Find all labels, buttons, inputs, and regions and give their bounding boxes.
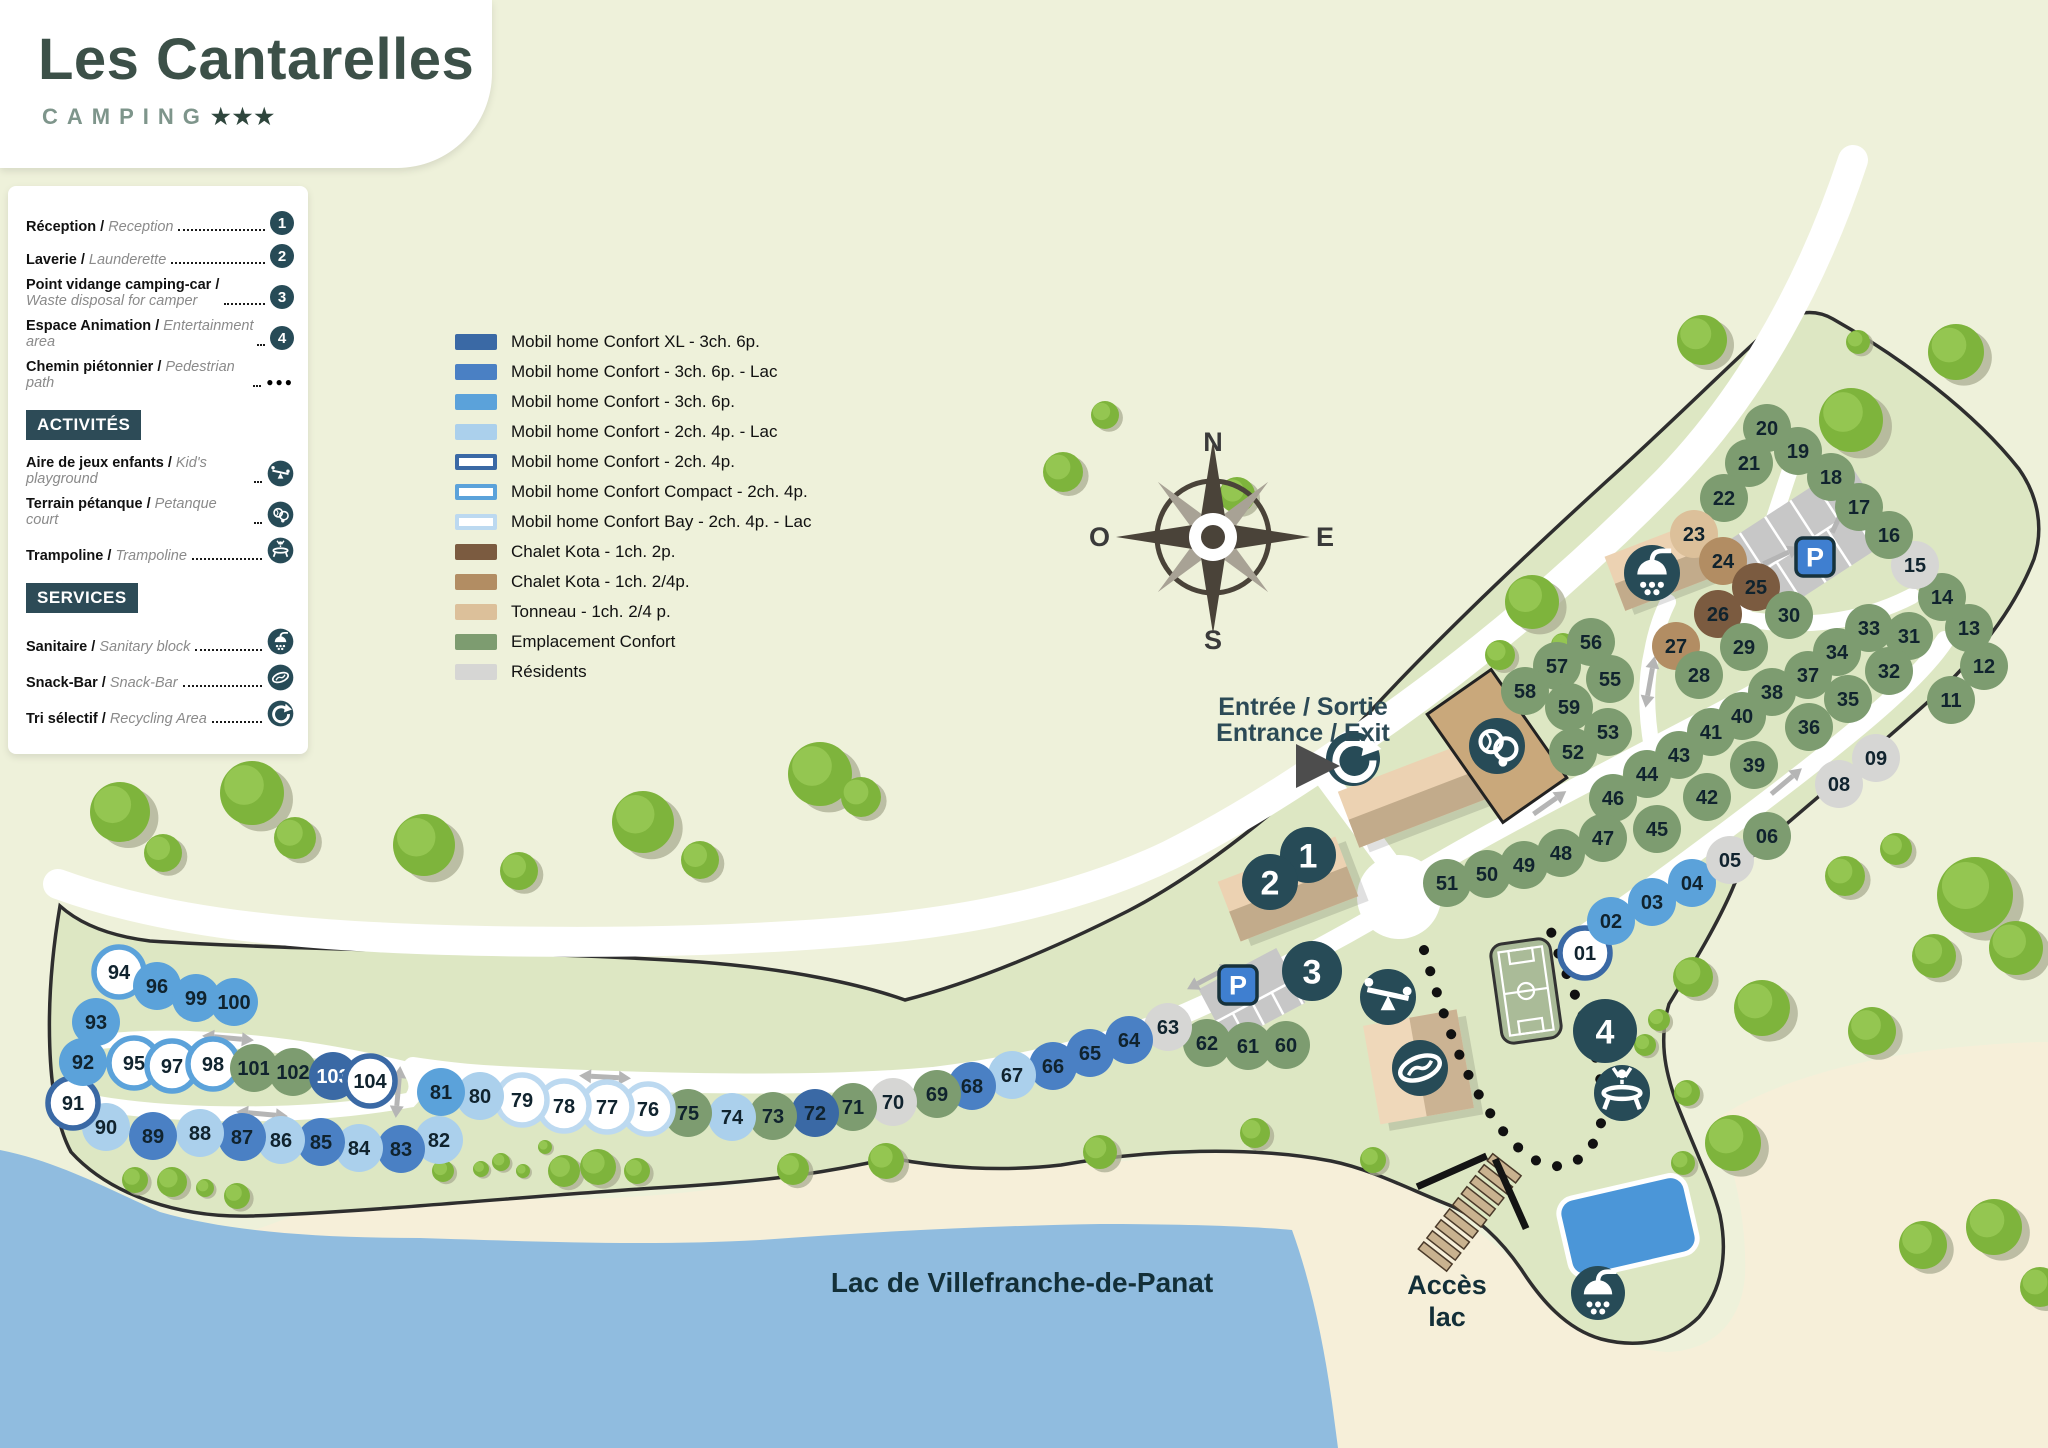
site-61: 61 <box>1224 1022 1272 1070</box>
accommodation-swatch <box>455 484 497 500</box>
accommodation-swatch <box>455 454 497 470</box>
site-87: 87 <box>218 1113 266 1161</box>
svg-text:50: 50 <box>1476 864 1498 886</box>
accommodation-label: Mobil home Confort - 3ch. 6p. <box>511 392 735 412</box>
svg-text:57: 57 <box>1546 656 1568 678</box>
svg-text:99: 99 <box>185 988 207 1010</box>
svg-text:93: 93 <box>85 1012 107 1034</box>
svg-text:21: 21 <box>1738 453 1760 475</box>
tree <box>681 841 724 883</box>
legend-item: Tri sélectif / Recycling Area <box>26 700 294 727</box>
tree <box>1091 401 1123 432</box>
site-47: 47 <box>1579 814 1627 862</box>
legend-item: Snack-Bar / Snack-Bar <box>26 664 294 691</box>
compass-e: E <box>1316 522 1334 552</box>
svg-text:31: 31 <box>1898 626 1920 648</box>
svg-text:P: P <box>1806 543 1824 573</box>
svg-text:56: 56 <box>1580 632 1602 654</box>
parking-sign: P <box>1219 966 1257 1004</box>
accommodation-legend-item: Chalet Kota - 1ch. 2p. <box>455 537 811 567</box>
tree <box>1677 315 1734 370</box>
legend-item: Sanitaire / Sanitary block <box>26 628 294 655</box>
svg-text:67: 67 <box>1001 1065 1023 1087</box>
svg-text:104: 104 <box>353 1071 387 1093</box>
svg-text:20: 20 <box>1756 418 1778 440</box>
site-72: 72 <box>791 1089 839 1137</box>
svg-text:100: 100 <box>217 992 250 1014</box>
accommodation-label: Mobil home Confort XL - 3ch. 6p. <box>511 332 760 352</box>
compass-n: N <box>1203 427 1223 457</box>
legend-item: Terrain pétanque / Petanque court <box>26 496 294 528</box>
logo-card: Les Cantarelles CAMPING★★★ <box>0 0 492 168</box>
svg-text:1: 1 <box>1299 837 1318 875</box>
svg-text:41: 41 <box>1700 722 1722 744</box>
legend-panel: Réception / Reception1Laverie / Laundere… <box>8 186 308 754</box>
svg-text:3: 3 <box>1303 953 1322 991</box>
svg-text:72: 72 <box>804 1103 826 1125</box>
tree <box>220 761 293 831</box>
svg-text:60: 60 <box>1275 1035 1297 1057</box>
svg-text:24: 24 <box>1712 551 1735 573</box>
svg-text:39: 39 <box>1743 755 1765 777</box>
pedestrian-path-symbol: ●●● <box>266 375 294 389</box>
compass-o: O <box>1089 522 1110 552</box>
svg-text:40: 40 <box>1731 706 1753 728</box>
site-88: 88 <box>176 1109 224 1157</box>
parking-sign: P <box>1796 538 1834 576</box>
site-81: 81 <box>417 1068 465 1116</box>
svg-text:77: 77 <box>596 1097 618 1119</box>
site-66: 66 <box>1029 1042 1077 1090</box>
site-subtitle: CAMPING★★★ <box>42 104 276 130</box>
petanque-icon <box>267 501 294 528</box>
svg-text:2: 2 <box>1261 864 1280 902</box>
tree <box>1928 324 1992 386</box>
site-45: 45 <box>1633 805 1681 853</box>
accommodation-legend-item: Résidents <box>455 657 811 687</box>
svg-text:83: 83 <box>390 1139 412 1161</box>
snackbar-icon <box>267 664 294 691</box>
accommodation-label: Mobil home Confort Bay - 2ch. 4p. - Lac <box>511 512 811 532</box>
accommodation-legend-item: Chalet Kota - 1ch. 2/4p. <box>455 567 811 597</box>
playground-icon <box>1360 969 1416 1025</box>
entrance-label-fr: Entrée / Sortie <box>1218 693 1388 721</box>
pitch-markers: 0102030405060809111213141516171819202122… <box>48 404 2008 1173</box>
sports-field <box>1489 937 1562 1044</box>
tree <box>1880 833 1916 868</box>
site-89: 89 <box>129 1112 177 1160</box>
svg-text:42: 42 <box>1696 787 1718 809</box>
svg-text:73: 73 <box>762 1106 784 1128</box>
svg-text:92: 92 <box>72 1052 94 1074</box>
legend-item: Trampoline / Trampoline <box>26 537 294 564</box>
svg-text:74: 74 <box>721 1107 744 1129</box>
svg-text:87: 87 <box>231 1127 253 1149</box>
compass-s: S <box>1204 625 1222 655</box>
svg-text:79: 79 <box>511 1090 533 1112</box>
svg-text:45: 45 <box>1646 819 1668 841</box>
site-91: 91 <box>48 1078 98 1128</box>
svg-text:65: 65 <box>1079 1043 1101 1065</box>
legend-facilities: Réception / Reception1Laverie / Laundere… <box>26 211 294 391</box>
tree <box>1825 856 1871 900</box>
svg-text:12: 12 <box>1973 656 1995 678</box>
accommodation-legend-item: Mobil home Confort XL - 3ch. 6p. <box>455 327 811 357</box>
tree <box>1043 452 1089 496</box>
site-74: 74 <box>708 1093 756 1141</box>
legend-item: Laverie / Launderette 2 <box>26 244 294 268</box>
site-100: 100 <box>210 978 258 1026</box>
svg-text:63: 63 <box>1157 1017 1179 1039</box>
facility-marker-2: 2 <box>1242 854 1298 910</box>
svg-text:82: 82 <box>428 1130 450 1152</box>
svg-text:32: 32 <box>1878 661 1900 683</box>
svg-text:98: 98 <box>202 1054 224 1076</box>
entrance-label-en: Entrance / Exit <box>1216 719 1390 747</box>
tree <box>1912 934 1962 982</box>
accommodation-swatch <box>455 574 497 590</box>
legend-item: Réception / Reception1 <box>26 211 294 235</box>
site-09: 09 <box>1852 734 1900 782</box>
svg-text:97: 97 <box>161 1056 183 1078</box>
legend-item: Aire de jeux enfants / Kid's playground <box>26 455 294 487</box>
svg-text:16: 16 <box>1878 525 1900 547</box>
site-42: 42 <box>1683 773 1731 821</box>
tree <box>1673 957 1719 1001</box>
site-32: 32 <box>1865 647 1913 695</box>
site-59: 59 <box>1545 683 1593 731</box>
svg-text:76: 76 <box>637 1099 659 1121</box>
site-83: 83 <box>377 1125 425 1173</box>
site-28: 28 <box>1675 651 1723 699</box>
svg-text:03: 03 <box>1641 892 1663 914</box>
svg-text:102: 102 <box>276 1062 309 1084</box>
legend-item: Chemin piétonnier / Pedestrian path●●● <box>26 359 294 391</box>
svg-text:88: 88 <box>189 1123 211 1145</box>
accommodation-swatch <box>455 514 497 530</box>
svg-text:18: 18 <box>1820 467 1842 489</box>
accommodation-label: Mobil home Confort Compact - 2ch. 4p. <box>511 482 808 502</box>
legend-services-title: SERVICES <box>26 583 138 613</box>
accommodation-label: Mobil home Confort - 3ch. 6p. - Lac <box>511 362 777 382</box>
svg-text:26: 26 <box>1707 604 1729 626</box>
legend-item: Point vidange camping-car /Waste disposa… <box>26 277 294 309</box>
svg-text:34: 34 <box>1826 642 1849 664</box>
svg-text:71: 71 <box>842 1097 864 1119</box>
svg-text:06: 06 <box>1756 826 1778 848</box>
facility-marker-3: 3 <box>1282 941 1342 1001</box>
svg-text:37: 37 <box>1797 665 1819 687</box>
svg-text:28: 28 <box>1688 665 1710 687</box>
svg-text:101: 101 <box>237 1058 270 1080</box>
shower-icon <box>1571 1266 1625 1320</box>
tree <box>393 814 464 882</box>
svg-text:94: 94 <box>108 962 131 984</box>
site-73: 73 <box>749 1092 797 1140</box>
shower-icon <box>267 628 294 655</box>
site-46: 46 <box>1589 774 1637 822</box>
accommodation-label: Résidents <box>511 662 587 682</box>
site-69: 69 <box>913 1070 961 1118</box>
legend-activities-title: ACTIVITÉS <box>26 410 141 440</box>
legend-activities: Aire de jeux enfants / Kid's playgroundT… <box>26 455 294 564</box>
tree <box>612 791 683 859</box>
svg-text:15: 15 <box>1904 555 1926 577</box>
svg-text:27: 27 <box>1665 636 1687 658</box>
svg-text:11: 11 <box>1940 690 1961 712</box>
compass-rose: N E S O <box>1089 427 1334 655</box>
svg-text:44: 44 <box>1636 764 1659 786</box>
trampoline-icon <box>267 537 294 564</box>
site-29: 29 <box>1720 623 1768 671</box>
accommodation-swatch <box>455 544 497 560</box>
facility-marker-4: 4 <box>1573 999 1637 1063</box>
svg-text:69: 69 <box>926 1084 948 1106</box>
accommodation-label: Mobil home Confort - 2ch. 4p. <box>511 452 735 472</box>
svg-text:91: 91 <box>62 1093 84 1115</box>
tree <box>90 782 158 848</box>
tree <box>144 834 187 876</box>
svg-text:49: 49 <box>1513 855 1535 877</box>
svg-text:36: 36 <box>1798 717 1820 739</box>
accommodation-legend-item: Mobil home Confort - 2ch. 4p. <box>455 447 811 477</box>
accommodation-label: Chalet Kota - 1ch. 2/4p. <box>511 572 690 592</box>
site-104: 104 <box>345 1056 395 1106</box>
svg-text:47: 47 <box>1592 828 1614 850</box>
site-79: 79 <box>497 1075 547 1125</box>
svg-text:35: 35 <box>1837 689 1859 711</box>
accommodation-legend-item: Mobil home Confort - 3ch. 6p. - Lac <box>455 357 811 387</box>
legend-badge-2: 2 <box>270 244 294 268</box>
svg-text:08: 08 <box>1828 774 1850 796</box>
svg-text:P: P <box>1229 971 1247 1001</box>
svg-text:96: 96 <box>146 976 168 998</box>
tree <box>500 852 543 894</box>
svg-text:70: 70 <box>882 1092 904 1114</box>
svg-text:51: 51 <box>1436 873 1458 895</box>
site-02: 02 <box>1587 897 1635 945</box>
svg-text:25: 25 <box>1745 577 1767 599</box>
svg-text:04: 04 <box>1681 873 1704 895</box>
svg-text:85: 85 <box>310 1132 332 1154</box>
tree <box>1734 980 1798 1042</box>
accommodation-legend-item: Mobil home Confort Compact - 2ch. 4p. <box>455 477 811 507</box>
svg-text:43: 43 <box>1668 745 1690 767</box>
accommodation-swatch <box>455 364 497 380</box>
legend-item: Espace Animation / Entertainment area 4 <box>26 318 294 350</box>
svg-text:33: 33 <box>1858 618 1880 640</box>
accommodation-swatch <box>455 604 497 620</box>
recycle-icon <box>267 700 294 727</box>
site-93: 93 <box>72 998 120 1046</box>
site-title: Les Cantarelles <box>38 26 474 93</box>
playground-icon <box>267 460 294 487</box>
site-06: 06 <box>1743 812 1791 860</box>
accommodation-swatch <box>455 334 497 350</box>
accommodation-legend-item: Tonneau - 1ch. 2/4 p. <box>455 597 811 627</box>
svg-text:61: 61 <box>1237 1036 1259 1058</box>
svg-text:23: 23 <box>1683 524 1705 546</box>
legend-badge-1: 1 <box>270 211 294 235</box>
svg-text:78: 78 <box>553 1096 575 1118</box>
site-51: 51 <box>1423 859 1471 907</box>
svg-text:30: 30 <box>1778 605 1800 627</box>
svg-text:84: 84 <box>348 1138 371 1160</box>
site-35: 35 <box>1824 675 1872 723</box>
snackbar-icon <box>1392 1040 1448 1096</box>
legend-badge-4: 4 <box>270 326 294 350</box>
star-rating: ★★★ <box>211 104 276 129</box>
svg-text:13: 13 <box>1958 618 1980 640</box>
svg-text:55: 55 <box>1599 669 1621 691</box>
svg-text:38: 38 <box>1761 682 1783 704</box>
accommodation-legend-item: Mobil home Confort Bay - 2ch. 4p. - Lac <box>455 507 811 537</box>
site-39: 39 <box>1730 741 1778 789</box>
svg-text:59: 59 <box>1558 697 1580 719</box>
site-36: 36 <box>1785 703 1833 751</box>
svg-text:62: 62 <box>1196 1033 1218 1055</box>
accommodation-label: Mobil home Confort - 2ch. 4p. - Lac <box>511 422 777 442</box>
shower-icon <box>1624 545 1680 601</box>
tree <box>1848 1007 1903 1060</box>
svg-text:14: 14 <box>1931 587 1954 609</box>
lake-access-label-1: Accès <box>1407 1270 1487 1300</box>
accommodation-label: Chalet Kota - 1ch. 2p. <box>511 542 675 562</box>
lake-access-label-2: lac <box>1428 1302 1466 1332</box>
svg-text:66: 66 <box>1042 1056 1064 1078</box>
svg-text:4: 4 <box>1596 1013 1615 1051</box>
trampoline-icon <box>1594 1065 1650 1121</box>
svg-text:95: 95 <box>123 1053 145 1075</box>
svg-text:22: 22 <box>1713 488 1735 510</box>
tree <box>1989 921 2048 980</box>
svg-text:46: 46 <box>1602 788 1624 810</box>
accommodation-swatch <box>455 424 497 440</box>
svg-text:58: 58 <box>1514 681 1536 703</box>
accommodation-label: Emplacement Confort <box>511 632 675 652</box>
accommodation-swatch <box>455 394 497 410</box>
svg-text:90: 90 <box>95 1117 117 1139</box>
svg-text:09: 09 <box>1865 748 1887 770</box>
svg-text:68: 68 <box>961 1076 983 1098</box>
svg-text:19: 19 <box>1787 441 1809 463</box>
site-58: 58 <box>1501 667 1549 715</box>
svg-text:48: 48 <box>1550 843 1572 865</box>
svg-text:86: 86 <box>270 1130 292 1152</box>
svg-text:29: 29 <box>1733 637 1755 659</box>
accommodation-swatch <box>455 664 497 680</box>
tree <box>274 817 322 863</box>
accommodation-legend-item: Mobil home Confort - 2ch. 4p. - Lac <box>455 417 811 447</box>
accommodation-label: Tonneau - 1ch. 2/4 p. <box>511 602 671 622</box>
svg-text:75: 75 <box>677 1103 699 1125</box>
accommodation-legend-item: Mobil home Confort - 3ch. 6p. <box>455 387 811 417</box>
svg-text:64: 64 <box>1118 1030 1141 1052</box>
legend-services: Sanitaire / Sanitary blockSnack-Bar / Sn… <box>26 628 294 727</box>
petanque-icon <box>1469 718 1525 774</box>
campsite-map-page: 0102030405060809111213141516171819202122… <box>0 0 2048 1448</box>
svg-text:53: 53 <box>1597 722 1619 744</box>
svg-text:89: 89 <box>142 1126 164 1148</box>
svg-text:81: 81 <box>430 1082 452 1104</box>
svg-text:01: 01 <box>1574 943 1596 965</box>
site-50: 50 <box>1463 850 1511 898</box>
svg-text:05: 05 <box>1719 850 1741 872</box>
legend-badge-3: 3 <box>270 285 294 309</box>
accommodation-swatch <box>455 634 497 650</box>
svg-text:02: 02 <box>1600 911 1622 933</box>
lake-label: Lac de Villefranche-de-Panat <box>831 1267 1213 1298</box>
site-30: 30 <box>1765 591 1813 639</box>
accommodation-legend-item: Emplacement Confort <box>455 627 811 657</box>
tree <box>841 777 887 821</box>
accommodation-legend: Mobil home Confort XL - 3ch. 6p.Mobil ho… <box>455 327 811 687</box>
svg-text:17: 17 <box>1848 497 1870 519</box>
svg-text:80: 80 <box>469 1086 491 1108</box>
svg-text:52: 52 <box>1562 742 1584 764</box>
